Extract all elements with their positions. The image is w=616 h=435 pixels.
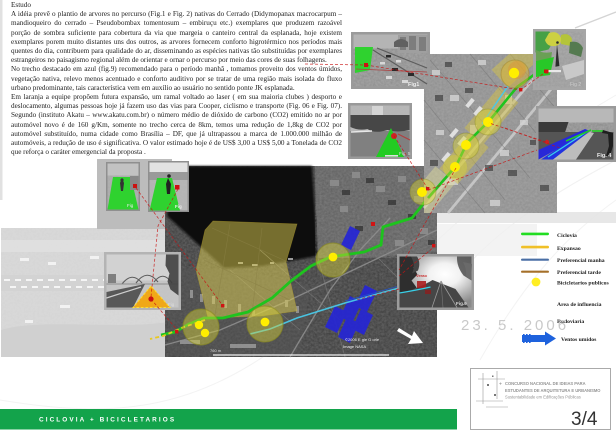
svg-text:+: + (499, 382, 502, 388)
svg-text:3/4: 3/4 (571, 409, 598, 430)
svg-text:Verao: Verao (416, 273, 427, 278)
svg-text:Fig 2: Fig 2 (570, 82, 581, 88)
svg-text:23. 5. 2006: 23. 5. 2006 (461, 317, 569, 334)
svg-text:Fig.9: Fig.9 (456, 301, 467, 306)
svg-text:CONCURSO NACIONAL DE IDEIAS PA: CONCURSO NACIONAL DE IDEIAS PARA (505, 381, 586, 386)
svg-text:Fig. 4: Fig. 4 (597, 153, 612, 159)
svg-text:Bicicletarios publicos: Bicicletarios publicos (557, 281, 609, 287)
svg-text:Expansao: Expansao (557, 246, 581, 252)
svg-text:Area de influencia: Area de influencia (557, 302, 602, 308)
svg-text:Image NASA: Image NASA (343, 344, 366, 349)
svg-text:Fig: Fig (168, 302, 175, 307)
svg-text:Fig: Fig (127, 203, 134, 208)
svg-text:Fig1: Fig1 (408, 82, 419, 88)
svg-text:Fig: Fig (175, 204, 182, 209)
svg-text:760 m: 760 m (210, 348, 222, 353)
svg-text:©2006 E gle G orle: ©2006 E gle G orle (345, 337, 380, 342)
svg-text:Preferencial tarde: Preferencial tarde (557, 270, 601, 276)
svg-text:Ciclovia: Ciclovia (557, 233, 577, 239)
svg-text:Preferencial manha: Preferencial manha (557, 258, 605, 264)
svg-text:Ventos umidos: Ventos umidos (561, 337, 597, 343)
svg-text:ESTUDANTES DE ARQUITETURA E UR: ESTUDANTES DE ARQUITETURA E URBANISMO (505, 388, 601, 393)
svg-text:Sustentabilidade em Edificaçõe: Sustentabilidade em Edificações Públicas (505, 395, 581, 400)
svg-text:CICLOVIA + BICICLETARIOS: CICLOVIA + BICICLETARIOS (39, 417, 176, 424)
